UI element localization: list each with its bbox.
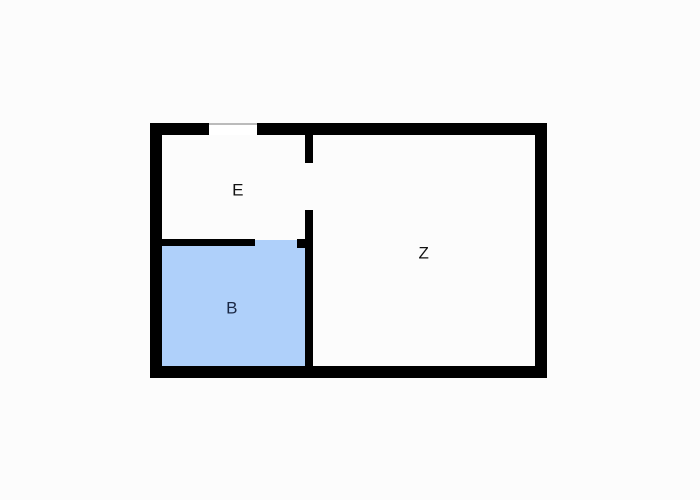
outer-wall-left (150, 123, 162, 378)
interior-wall-stub (297, 239, 306, 248)
interior-wall-e-b-divider (162, 239, 255, 246)
room-label-b: B (226, 300, 238, 317)
entry-door-opening (209, 123, 257, 135)
room-label-e: E (232, 182, 244, 199)
interior-wall-vertical-upper (305, 135, 313, 163)
outer-wall-bottom (150, 366, 547, 378)
room-label-z: Z (419, 245, 430, 262)
interior-wall-vertical-lower (305, 210, 313, 366)
outer-wall-right (535, 123, 547, 378)
floor-plan-canvas: E B Z (0, 0, 700, 500)
